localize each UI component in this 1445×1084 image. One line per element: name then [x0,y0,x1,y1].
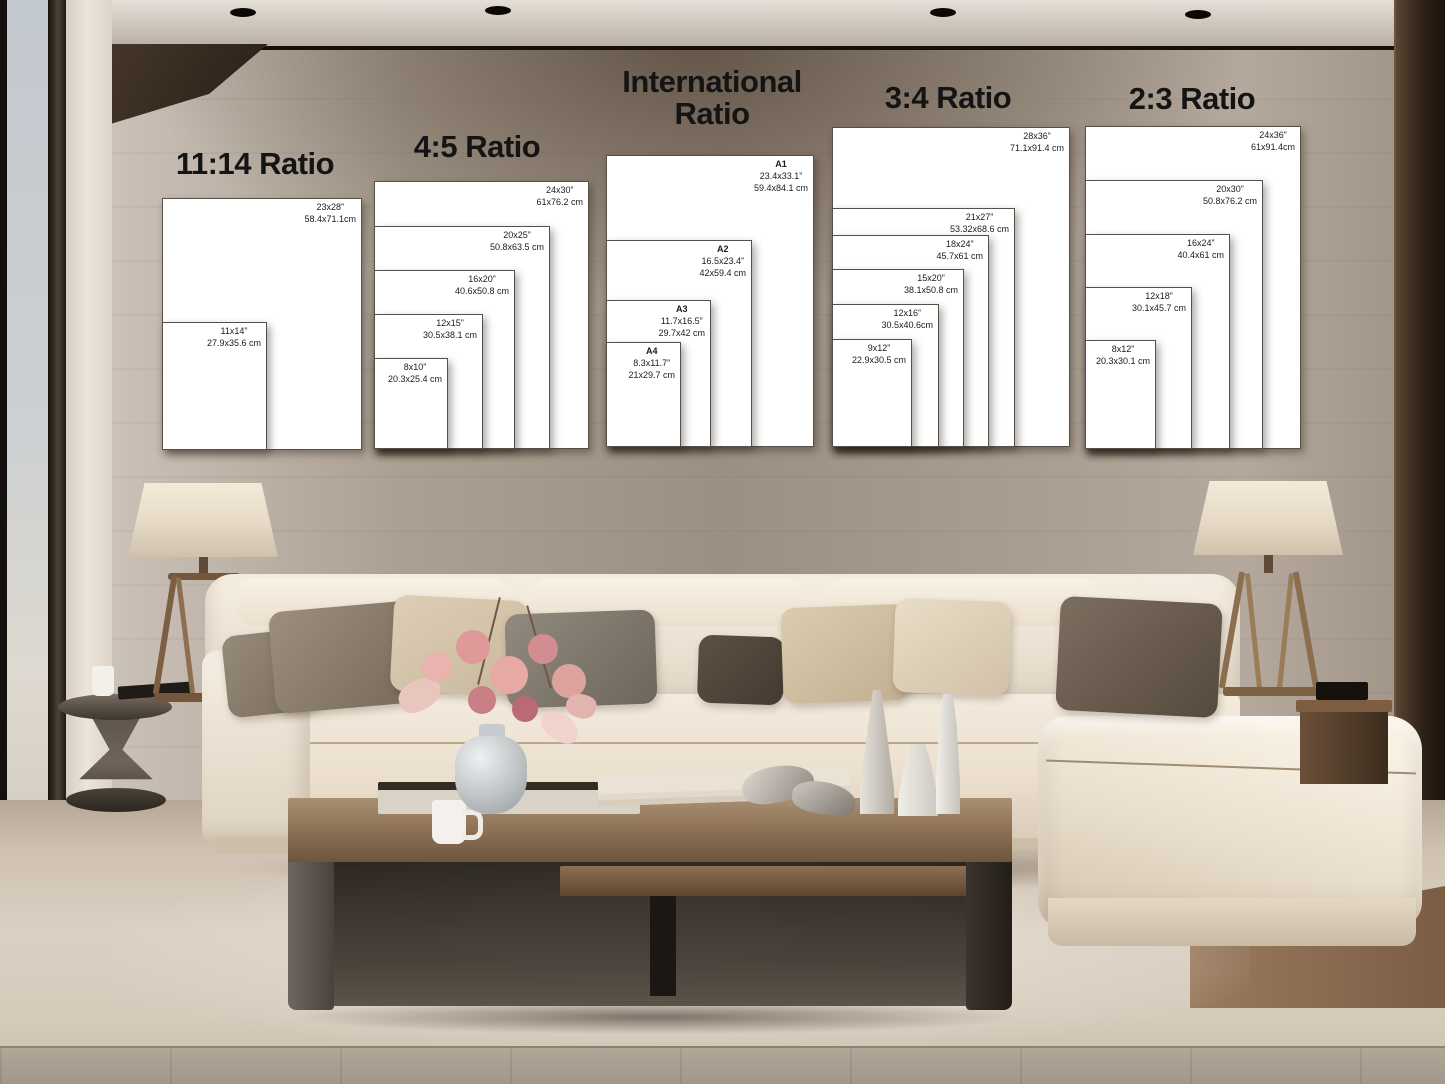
ratio-group-international: A123.4x33.1”59.4x84.1 cm A216.5x23.4”42x… [606,157,812,447]
lamp-base-slat [153,575,178,694]
table-lamp-right [1193,481,1345,706]
coffee-mug-handle [462,810,483,840]
ratio-group-11-14: 23x28”58.4x71.1cm 11x14”27.9x35.6 cm [162,200,360,450]
pillow-dark-brown [697,635,785,706]
poster-8x12: 8x12”20.3x30.1 cm [1085,340,1156,449]
group-title-4-5: 4:5 Ratio [357,131,597,163]
lamp-shade [128,483,278,557]
flower [528,634,558,664]
lamp-stem [1264,555,1273,573]
lamp-base-slat [1245,573,1262,689]
recessed-light [485,6,511,15]
recessed-light [930,8,956,17]
poster-11x14: 11x14”27.9x35.6 cm [162,322,267,450]
poster-a4: A48.3x11.7”21x29.7 cm [606,342,681,447]
recessed-light [1185,10,1211,19]
poster-9x12: 9x12”22.9x30.5 cm [832,339,912,447]
group-title-3-4: 3:4 Ratio [828,82,1068,114]
decor-box [1316,682,1368,700]
group-title-2-3: 2:3 Ratio [1072,83,1312,115]
side-stool-base [66,788,166,812]
mug [92,666,114,696]
side-table-right [1296,700,1392,712]
coffee-table-leg [650,896,676,996]
recessed-light [230,8,256,17]
group-title-international: International Ratio [592,66,832,129]
ratio-group-3-4: 28x36”71.1x91.4 cm 21x27”53.32x68.6 cm 1… [832,129,1068,447]
flower [490,656,528,694]
lamp-base-slat [1277,573,1294,689]
ceiling [0,0,1445,50]
ratio-group-2-3: 24x36”61x91.4cm 20x30”50.8x76.2 cm 16x24… [1085,128,1299,449]
coffee-table-shelf [560,866,980,896]
flower [512,696,538,722]
lamp-base-slat [1219,571,1245,688]
lamp-shade [1193,481,1343,555]
lamp-base-slat [176,577,195,695]
chaise-base [1048,898,1416,946]
poster-size-guide-mockup: 11:14 Ratio 23x28”58.4x71.1cm 11x14”27.9… [0,0,1445,1084]
lamp-base-slat [1293,571,1319,688]
lamp-base-foot [1223,687,1317,696]
side-table-right-frame [1300,712,1388,784]
flower [422,652,452,682]
group-title-11-14: 11:14 Ratio [135,148,375,180]
flower [456,630,490,664]
flower-vase [455,736,527,814]
ratio-group-4-5: 24x30”61x76.2 cm 20x25”50.8x63.5 cm 16x2… [374,183,587,449]
pillow-beige [780,604,909,704]
flower-bouquet [370,596,640,752]
floor-planks [0,1046,1445,1084]
flower [468,686,496,714]
coffee-table-side [966,858,1012,1010]
poster-8x10: 8x10”20.3x25.4 cm [374,358,448,449]
coffee-table-side [288,858,334,1010]
pillow-light-cream [892,598,1011,696]
coffee-mug [432,800,466,844]
